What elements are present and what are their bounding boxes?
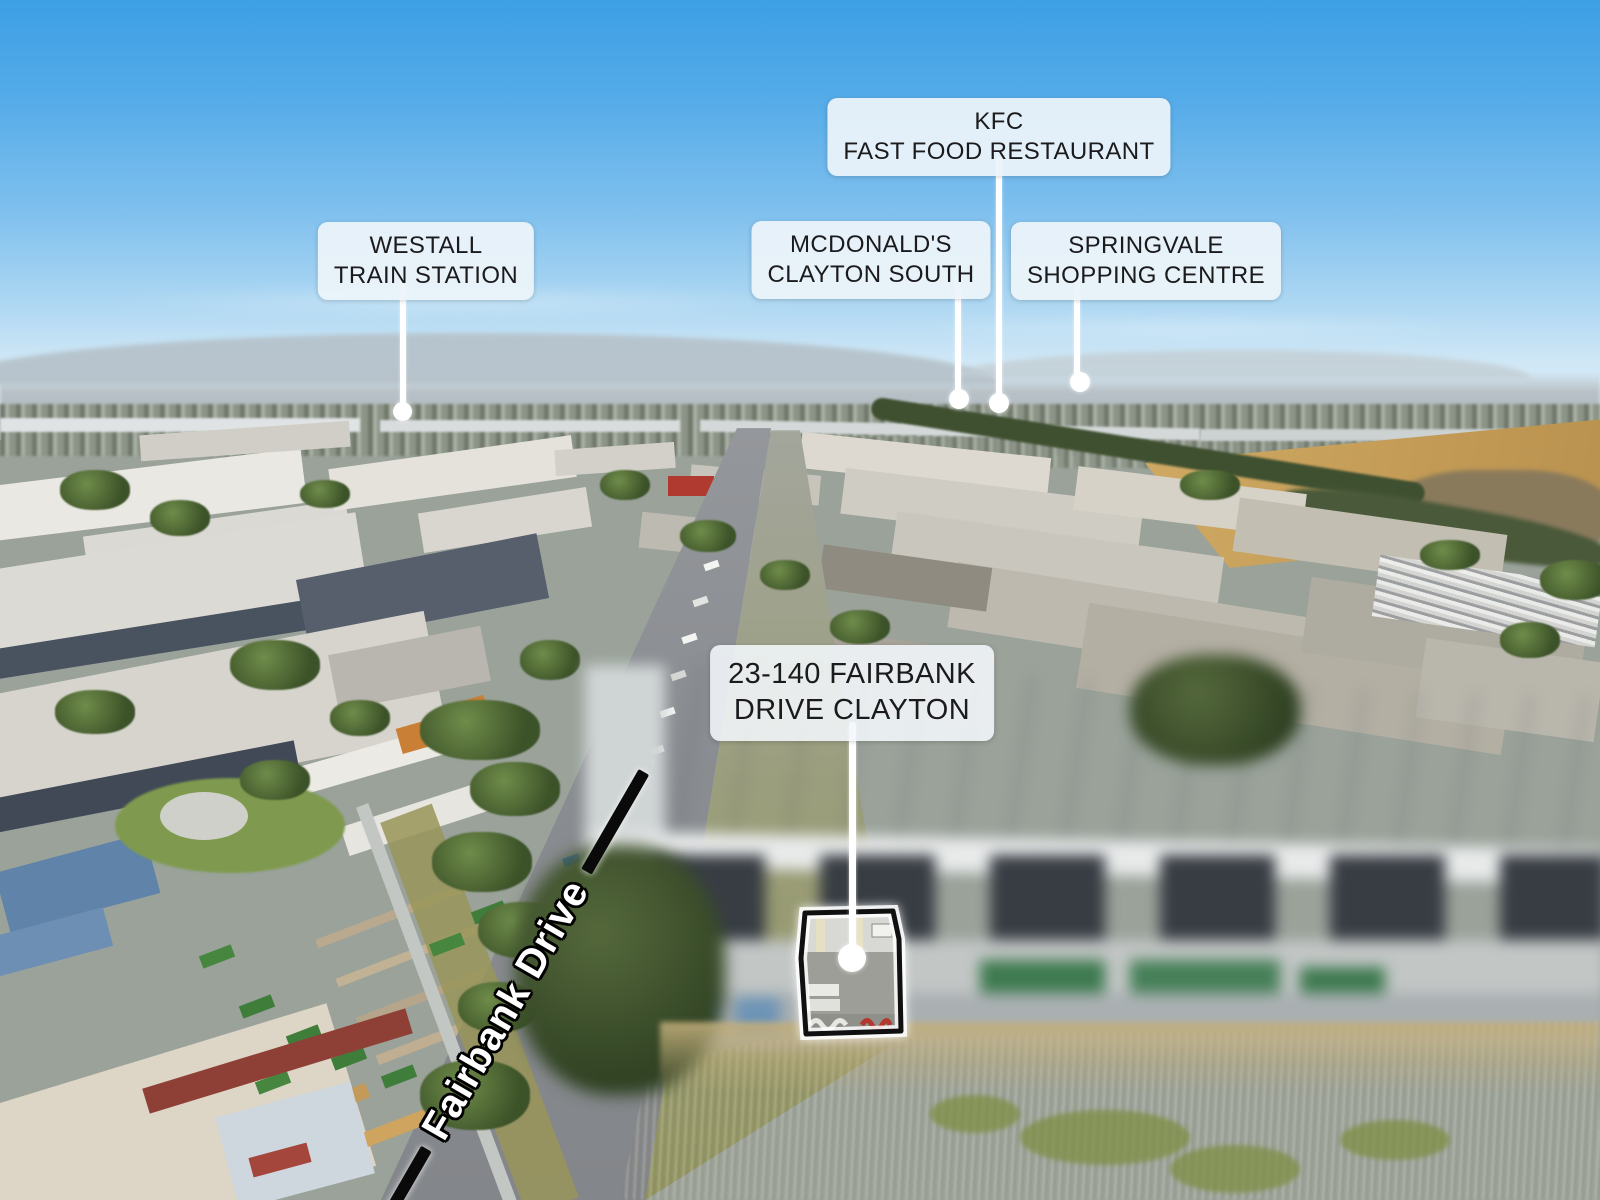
pointer-line-kfc [996,158,1002,405]
roller-door [990,855,1105,943]
tree-cluster [600,470,650,500]
tree-cluster [1540,560,1600,600]
callout-property: 23-140 FAIRBANK DRIVE CLAYTON [710,645,994,741]
tree-cluster [300,480,350,508]
tree-cluster [150,500,210,536]
callout-westall-line1: WESTALL [334,231,518,261]
roller-door [1160,855,1275,943]
pointer-dot-property [838,944,866,972]
green-machinery [239,994,275,1018]
cloud-streak [880,315,1500,341]
field-green-patch [1020,1110,1190,1165]
callout-westall-line2: TRAIN STATION [334,261,518,291]
distant-shed [380,420,680,432]
callout-property-line1: 23-140 FAIRBANK [728,657,976,693]
field-green-patch [1170,1145,1300,1193]
pointer-line-property [849,722,856,960]
callout-kfc-line1: KFC [843,107,1154,137]
tree-cluster [830,610,890,644]
callout-mcdonalds-line1: MCDONALD'S [767,230,974,260]
green-machinery [381,1064,417,1088]
tree-over-warehouse [1130,655,1300,765]
tree-cluster [680,520,736,552]
pointer-dot-westall [393,402,412,421]
callout-springvale: SPRINGVALE SHOPPING CENTRE [1011,222,1281,300]
aerial-photo: KFC FAST FOOD RESTAURANT WESTALL TRAIN S… [0,0,1600,1200]
tree-cluster [470,762,560,816]
pointer-dot-kfc [989,393,1009,413]
callout-mcdonalds-line2: CLAYTON SOUTH [767,260,974,290]
roller-door [1500,855,1600,943]
field-green-patch [1340,1120,1450,1160]
water-tank [160,792,248,840]
callout-kfc: KFC FAST FOOD RESTAURANT [827,98,1170,176]
tree-cluster [330,700,390,736]
tree-cluster [1420,540,1480,570]
callout-kfc-line2: FAST FOOD RESTAURANT [843,137,1154,167]
pointer-dot-mcdonalds [949,389,969,409]
tree-cluster [240,760,310,800]
tree-cluster [520,640,580,680]
callout-springvale-line1: SPRINGVALE [1027,231,1265,261]
tree-cluster [230,640,320,690]
callout-property-line2: DRIVE CLAYTON [728,693,976,729]
green-machinery [199,944,235,968]
pointer-dot-springvale [1070,372,1090,392]
callout-springvale-line2: SHOPPING CENTRE [1027,261,1265,291]
tree-cluster [1180,470,1240,500]
roller-door [1330,855,1445,943]
tree-cluster [1500,622,1560,658]
tree-cluster [432,832,532,892]
tree-cluster [420,700,540,760]
callout-westall: WESTALL TRAIN STATION [318,222,534,300]
tree-cluster [55,690,135,734]
tree-cluster [760,560,810,590]
field-green-patch [930,1095,1020,1133]
callout-mcdonalds: MCDONALD'S CLAYTON SOUTH [751,221,990,299]
tree-cluster [60,470,130,510]
